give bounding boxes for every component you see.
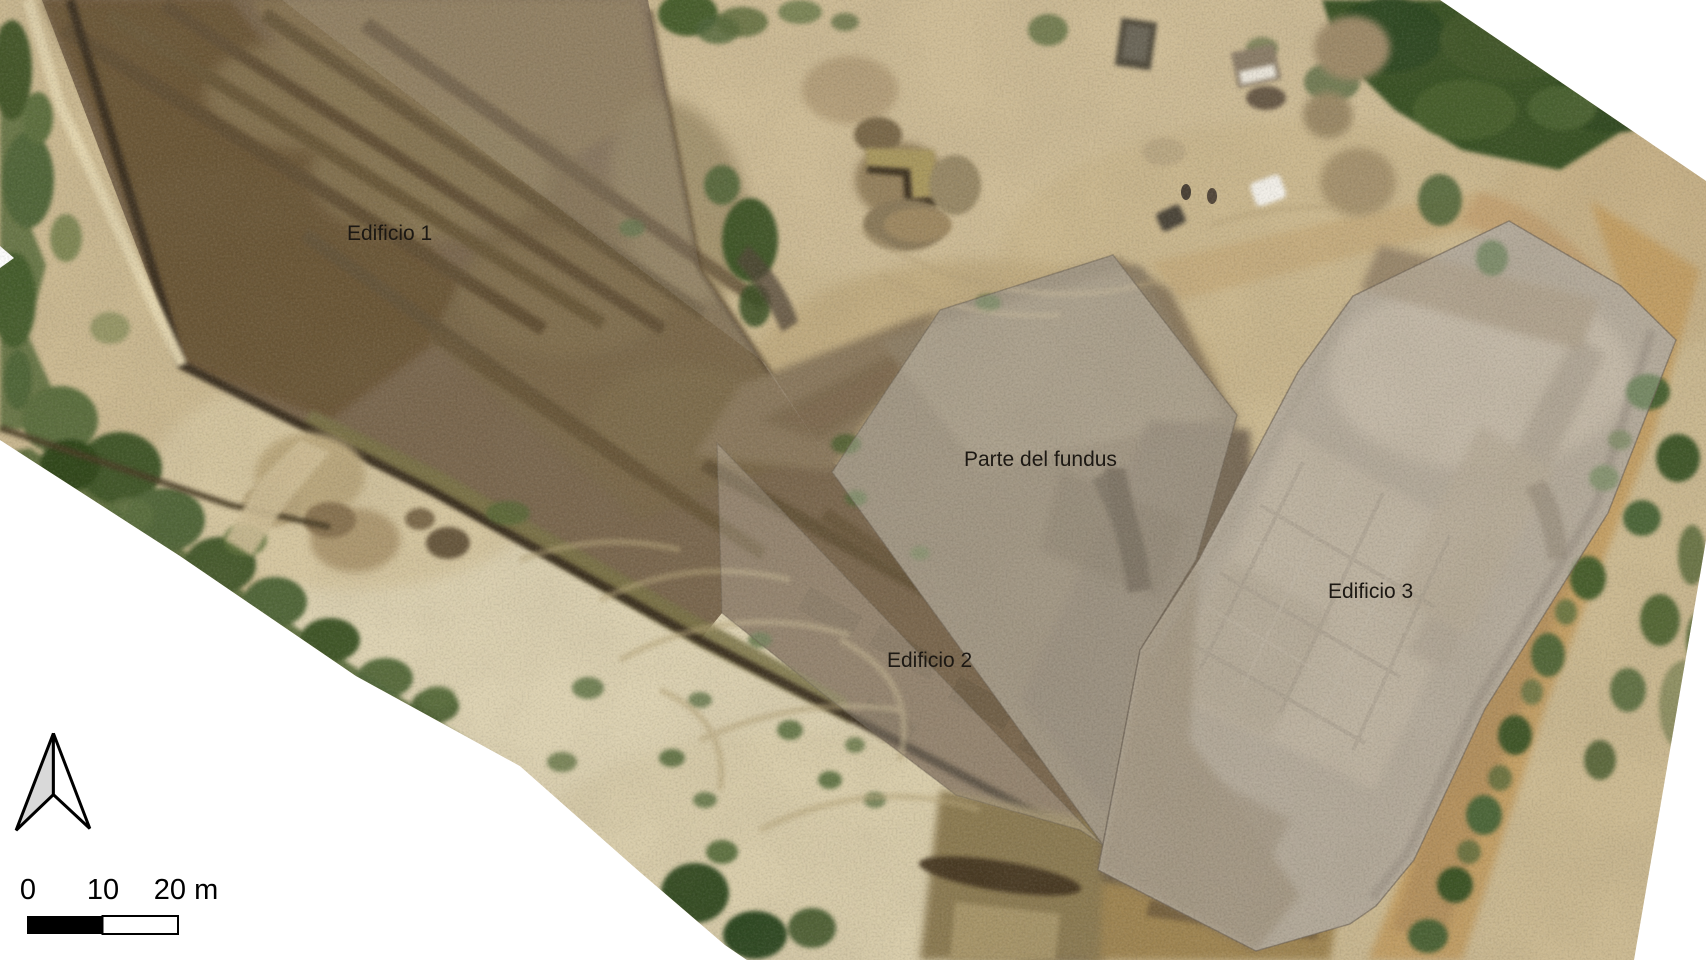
svg-text:0: 0 xyxy=(20,874,36,906)
svg-text:20 m: 20 m xyxy=(154,874,218,906)
svg-text:Parte del fundus: Parte del fundus xyxy=(964,448,1117,471)
svg-text:10: 10 xyxy=(87,874,119,906)
svg-text:Edificio 1: Edificio 1 xyxy=(347,222,432,245)
svg-text:Edificio 2: Edificio 2 xyxy=(887,649,972,672)
svg-text:Edificio 3: Edificio 3 xyxy=(1328,580,1413,603)
